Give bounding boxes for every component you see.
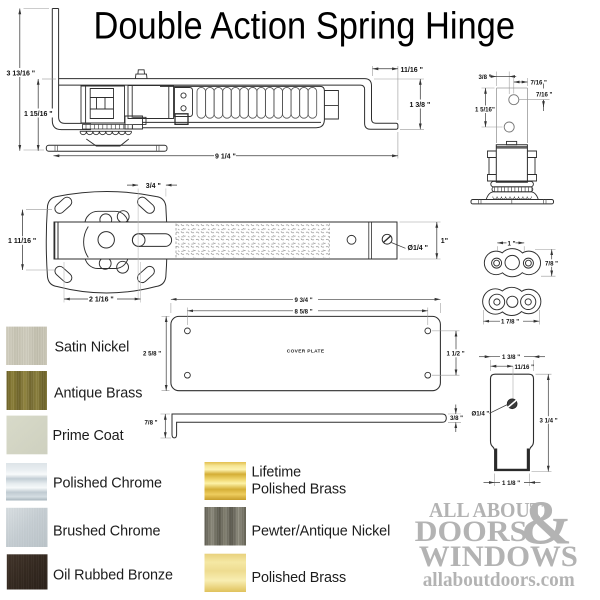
svg-text:allaboutdoors.com: allaboutdoors.com bbox=[423, 569, 575, 591]
svg-text:1 3/8 ": 1 3/8 " bbox=[502, 354, 520, 361]
svg-text:8 5/8 ": 8 5/8 " bbox=[295, 308, 313, 315]
svg-text:1 11/16 ": 1 11/16 " bbox=[8, 238, 36, 245]
svg-text:1 15/16 ": 1 15/16 " bbox=[24, 111, 53, 118]
svg-text:1 7/8 ": 1 7/8 " bbox=[501, 319, 519, 326]
svg-text:1 ": 1 " bbox=[508, 240, 516, 247]
svg-text:Pewter/Antique Nickel: Pewter/Antique Nickel bbox=[252, 523, 391, 539]
svg-text:COVER PLATE: COVER PLATE bbox=[287, 349, 325, 355]
svg-text:3/4 ": 3/4 " bbox=[146, 183, 161, 190]
svg-text:3 1/4 ": 3 1/4 " bbox=[540, 418, 558, 425]
svg-text:11/16 ": 11/16 " bbox=[401, 67, 423, 74]
svg-text:1 1/8 ": 1 1/8 " bbox=[502, 480, 520, 487]
svg-text:3/8 ": 3/8 " bbox=[450, 415, 463, 422]
svg-text:Polished Brass: Polished Brass bbox=[252, 482, 347, 498]
svg-text:Prime Coat: Prime Coat bbox=[53, 428, 124, 444]
svg-text:3/8 ": 3/8 " bbox=[479, 74, 492, 81]
svg-text:1 1/2 ": 1 1/2 " bbox=[447, 351, 465, 358]
svg-text:Antique Brass: Antique Brass bbox=[54, 386, 142, 402]
svg-text:9 3/4 ": 9 3/4 " bbox=[295, 297, 313, 304]
svg-text:Lifetime: Lifetime bbox=[252, 465, 302, 481]
svg-text:2 1/16 ": 2 1/16 " bbox=[89, 297, 114, 304]
svg-text:1 5/16": 1 5/16" bbox=[475, 107, 495, 114]
svg-text:2 5/8 ": 2 5/8 " bbox=[143, 351, 161, 358]
svg-text:Polished Brass: Polished Brass bbox=[252, 570, 347, 586]
svg-text:7/8 ": 7/8 " bbox=[545, 260, 558, 267]
svg-text:7/16 ": 7/16 " bbox=[531, 80, 548, 87]
svg-text:1": 1" bbox=[441, 238, 448, 245]
svg-text:WINDOWS: WINDOWS bbox=[419, 541, 578, 573]
svg-text:3 13/16 ": 3 13/16 " bbox=[7, 70, 36, 77]
svg-text:Ø1/4 ": Ø1/4 " bbox=[472, 411, 490, 418]
svg-text:Polished Chrome: Polished Chrome bbox=[53, 476, 162, 492]
svg-text:11/16 ": 11/16 " bbox=[515, 364, 535, 371]
svg-text:Satin Nickel: Satin Nickel bbox=[55, 340, 130, 356]
svg-text:Double Action Spring Hinge: Double Action Spring Hinge bbox=[94, 6, 516, 48]
svg-text:Ø1/4 ": Ø1/4 " bbox=[408, 245, 428, 252]
svg-text:Brushed Chrome: Brushed Chrome bbox=[53, 524, 160, 540]
svg-text:7/8 ": 7/8 " bbox=[145, 420, 158, 427]
svg-text:9 1/4 ": 9 1/4 " bbox=[215, 153, 236, 160]
svg-text:7/16 ": 7/16 " bbox=[536, 92, 553, 99]
svg-text:1 3/8 ": 1 3/8 " bbox=[410, 102, 431, 109]
svg-text:Oil Rubbed Bronze: Oil Rubbed Bronze bbox=[53, 568, 173, 584]
